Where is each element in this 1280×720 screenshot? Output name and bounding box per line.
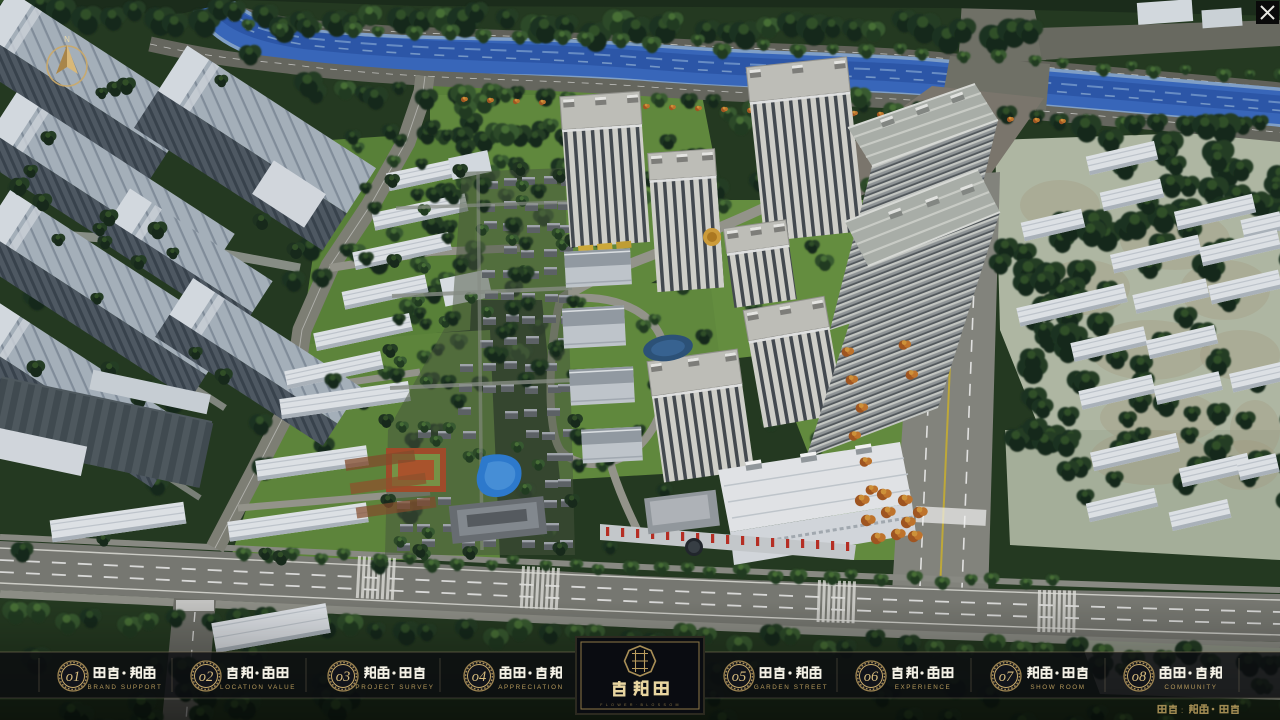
svg-text:APPRECIATION: APPRECIATION — [498, 684, 564, 691]
svg-text:N: N — [64, 35, 70, 44]
svg-text:BRAND SUPPORT: BRAND SUPPORT — [88, 684, 163, 691]
svg-text:SHOW ROOM: SHOW ROOM — [1030, 684, 1085, 691]
svg-text:LOCATION VALUE: LOCATION VALUE — [220, 684, 296, 691]
svg-text:o2: o2 — [199, 669, 214, 685]
svg-text:COMMUNITY: COMMUNITY — [1164, 684, 1217, 691]
svg-text:o7: o7 — [999, 669, 1014, 685]
svg-text:GARDEN STREET: GARDEN STREET — [754, 684, 828, 691]
svg-text:o3: o3 — [336, 669, 351, 685]
svg-text:o6: o6 — [864, 669, 879, 685]
svg-text:o1: o1 — [66, 669, 81, 685]
svg-text:o8: o8 — [1132, 669, 1147, 685]
svg-text:o4: o4 — [472, 669, 487, 685]
svg-text:F L O W E R · B L O S S O M: F L O W E R · B L O S S O M — [600, 703, 679, 707]
svg-text::: : — [1181, 706, 1183, 715]
svg-text:o5: o5 — [732, 669, 747, 685]
svg-text:PROJECT SURVEY: PROJECT SURVEY — [355, 684, 434, 691]
svg-text:EXPERIENCE: EXPERIENCE — [895, 684, 952, 691]
